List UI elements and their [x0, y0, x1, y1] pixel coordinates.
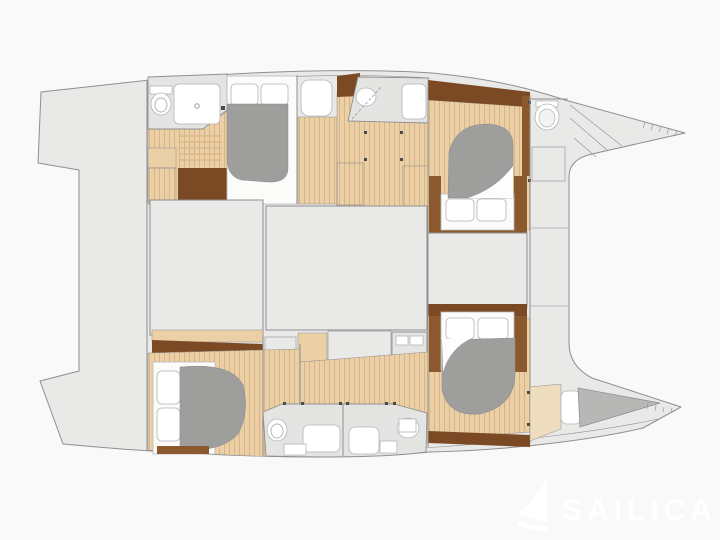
catamaran-floor-plan: SAILICA [0, 0, 720, 540]
port-corridor-floor [298, 117, 337, 204]
shower-tray [303, 425, 340, 452]
watermark: SAILICA [516, 477, 717, 531]
galley-counter [298, 333, 327, 362]
port-aft-cabinet [148, 148, 176, 168]
pillow [478, 318, 508, 339]
pillow [446, 199, 474, 221]
saloon-forward [266, 206, 427, 330]
forepeak-hatch [561, 391, 581, 424]
port-aft-desk [178, 168, 228, 204]
pillow [261, 84, 288, 105]
starboard-bathrooms [263, 402, 427, 457]
pillow [157, 371, 180, 404]
bed-frame [514, 316, 527, 372]
pillow [446, 318, 474, 339]
port-aft-cabin-bed [227, 76, 297, 204]
forward-cockpit [428, 233, 527, 307]
shower-tray [402, 84, 426, 119]
bed-frame [514, 176, 527, 230]
bed-frame [429, 316, 441, 372]
port-mid-bathroom [348, 77, 428, 123]
watermark-text: SAILICA [562, 494, 717, 527]
sink-icon [284, 444, 306, 455]
port-aft-bathroom [148, 74, 227, 129]
pillow [157, 408, 180, 441]
saloon-aft [150, 200, 263, 335]
floorplan-image: SAILICA [0, 0, 720, 540]
pillow [231, 84, 258, 105]
sail-icon [516, 477, 548, 531]
deck-hatch [301, 80, 332, 116]
bed-duvet [227, 104, 288, 182]
bed-frame [429, 176, 441, 230]
pillow [477, 199, 506, 221]
shower-tray [349, 427, 379, 454]
